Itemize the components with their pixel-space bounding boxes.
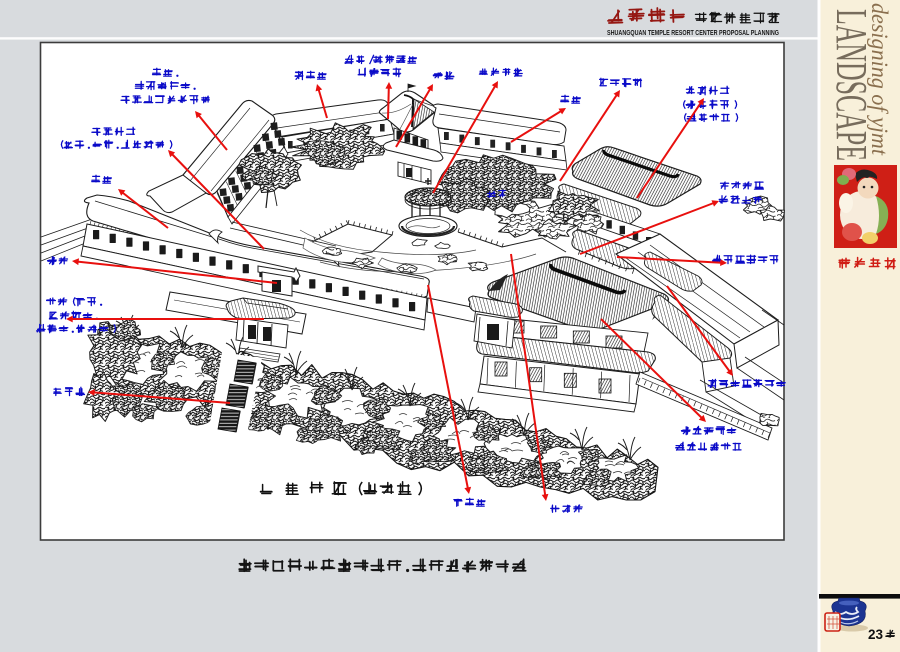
svg-text:designing of yjmt: designing of yjmt (867, 3, 892, 156)
svg-text:SHUANGQUAN TEMPLE RESORT CENTE: SHUANGQUAN TEMPLE RESORT CENTER PROPOSAL… (607, 28, 779, 37)
svg-text:23: 23 (868, 627, 884, 642)
